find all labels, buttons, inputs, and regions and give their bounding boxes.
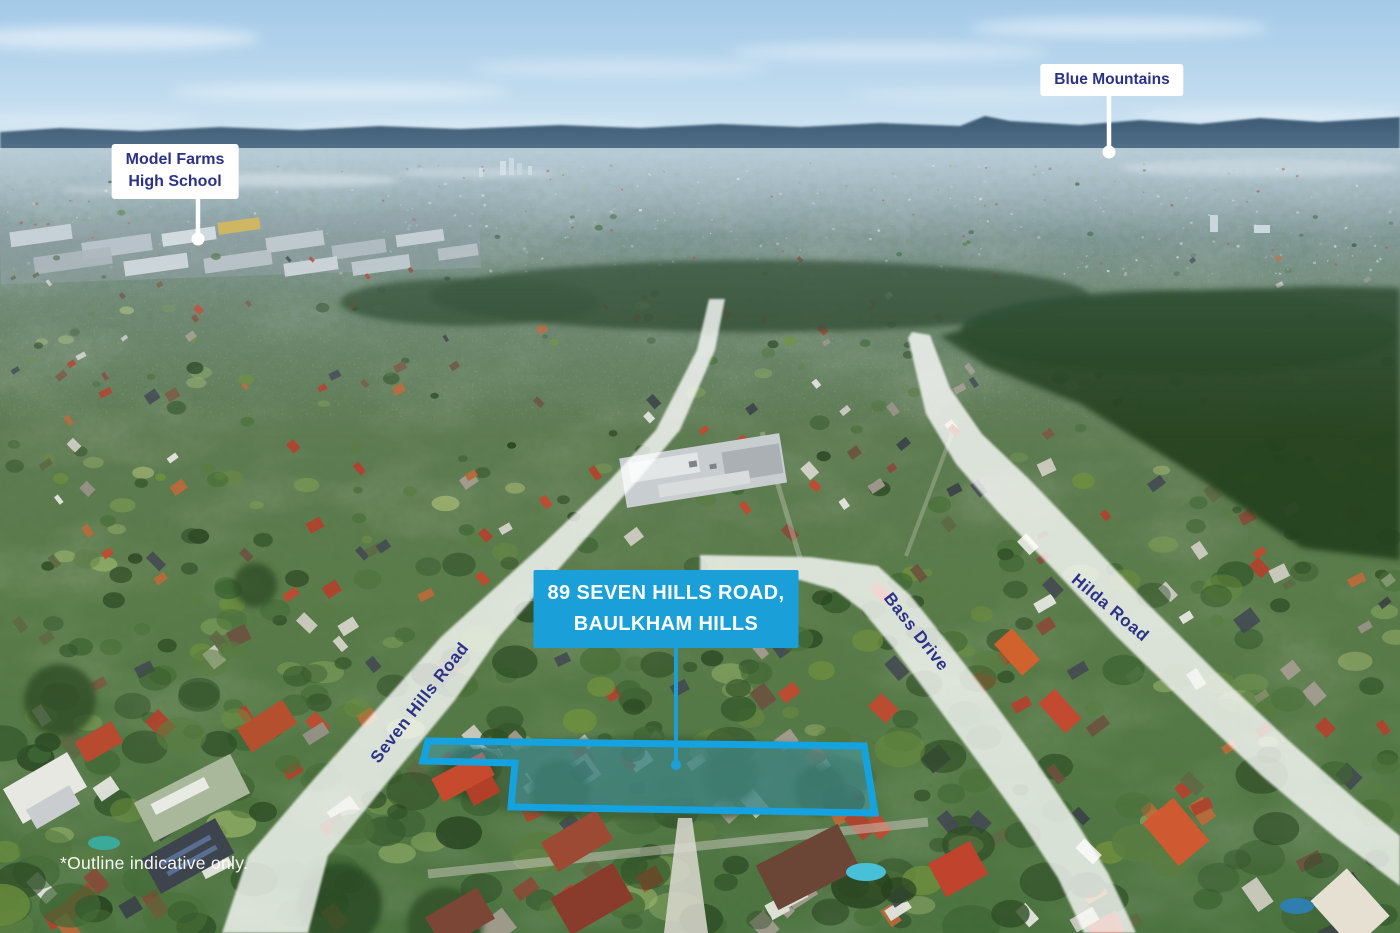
model-farms-pointer-dot: [192, 233, 205, 246]
outline-disclaimer: *Outline indicative only.: [60, 853, 248, 874]
property-address-callout: 89 SEVEN HILLS ROAD, BAULKHAM HILLS: [534, 570, 799, 648]
model-farms-label-line1: Model Farms: [126, 149, 225, 171]
blue-mountains-callout: Blue Mountains: [1040, 64, 1183, 96]
blue-mountains-pointer-dot: [1103, 146, 1116, 159]
property-pointer-dot: [671, 760, 681, 770]
property-address-line1: 89 SEVEN HILLS ROAD,: [548, 578, 785, 609]
model-farms-label-line2: High School: [126, 171, 225, 193]
blue-mountains-label: Blue Mountains: [1054, 71, 1169, 88]
property-address-line2: BAULKHAM HILLS: [548, 609, 785, 640]
aerial-photo: [0, 0, 1400, 933]
aerial-photo-stage: Blue Mountains Model Farms High School 8…: [0, 0, 1400, 933]
model-farms-callout: Model Farms High School: [112, 144, 239, 199]
